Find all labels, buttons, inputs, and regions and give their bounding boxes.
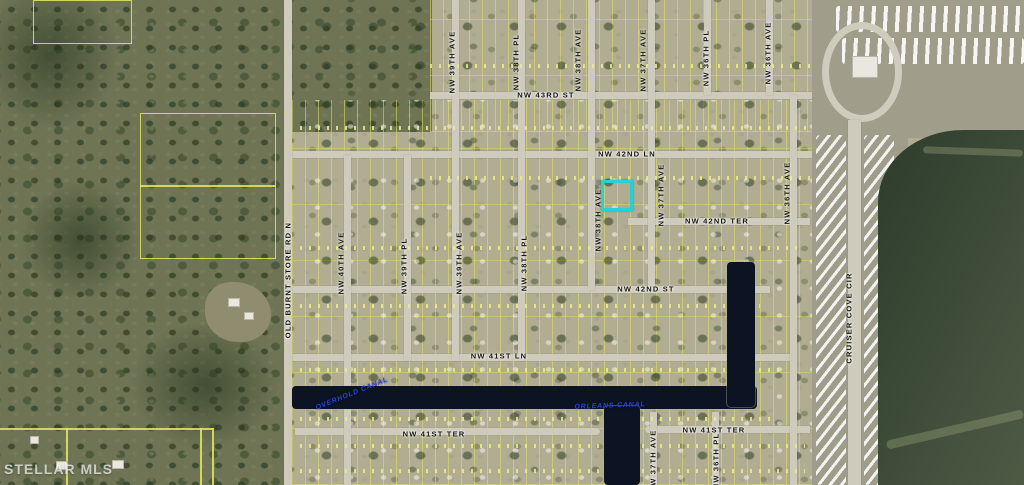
street-label: NW 39TH AVE — [455, 232, 464, 295]
street-label: NW 41ST LN — [471, 352, 528, 361]
street-label: NW 42ND TER — [685, 217, 749, 226]
street-label: NW 38TH PL — [512, 34, 521, 91]
canal-label: ORLEANS CANAL — [574, 401, 645, 410]
street-label: OLD BURNT STORE RD N — [284, 222, 293, 338]
street-label: CRUISER COVE CIR — [845, 272, 854, 363]
street-label: NW 42ND LN — [598, 150, 656, 159]
street-label: NW 37TH AVE — [657, 164, 666, 227]
street-label: NW 38TH AVE — [574, 29, 583, 92]
labels-layer: NW 43RD STNW 42ND LNNW 42ND TERNW 42ND S… — [0, 0, 1024, 485]
street-label: NW 38TH PL — [520, 235, 529, 292]
street-label: NW 39TH AVE — [448, 31, 457, 94]
street-label: NW 40TH AVE — [337, 232, 346, 295]
canal-label: OVERHOLD CANAL — [315, 376, 389, 411]
street-label: NW 36TH AVE — [783, 162, 792, 225]
street-label: NW 36TH PL — [702, 30, 711, 87]
highlighted-parcel — [601, 180, 633, 211]
street-label: NW 41ST TER — [403, 430, 466, 439]
street-label: NW 37TH AVE — [639, 29, 648, 92]
street-label: NW 39TH PL — [400, 238, 409, 295]
map-image[interactable]: NW 43RD STNW 42ND LNNW 42ND TERNW 42ND S… — [0, 0, 1024, 485]
street-label: NW 36TH PL — [712, 433, 721, 485]
street-label: NW 37TH AVE — [649, 430, 658, 485]
street-label: NW 36TH AVE — [764, 22, 773, 85]
street-label: NW 43RD ST — [517, 91, 574, 100]
street-label: NW 42ND ST — [617, 285, 674, 294]
mls-watermark: STELLAR MLS — [4, 461, 113, 477]
